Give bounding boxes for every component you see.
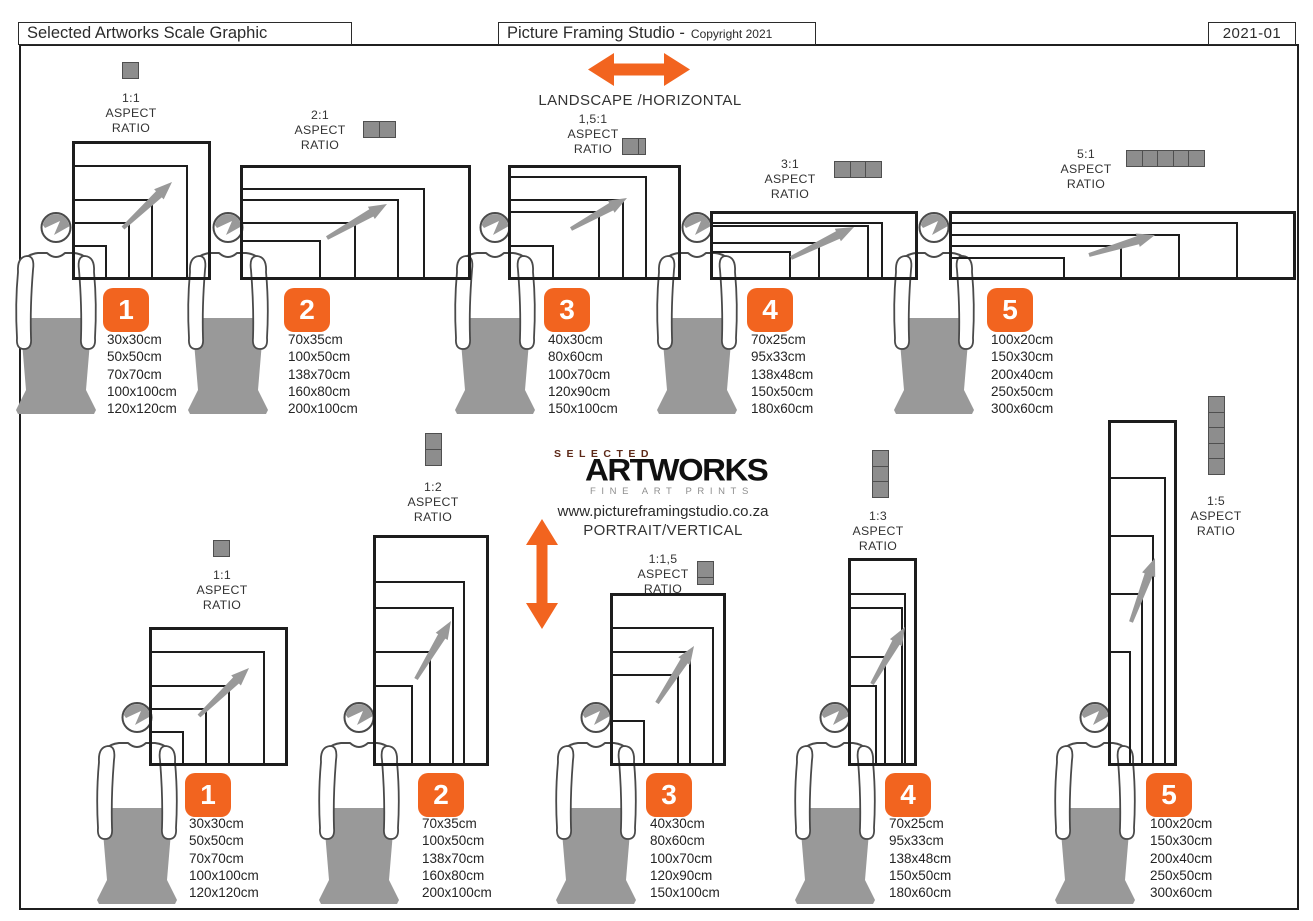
aspect-ratio-icon	[872, 450, 889, 498]
aspect-ratio-icon	[122, 62, 139, 79]
size-item: 120x120cm	[189, 884, 259, 901]
size-item: 200x40cm	[1150, 850, 1212, 867]
studio-title: Picture Framing Studio -	[507, 24, 685, 43]
size-item: 80x60cm	[548, 348, 618, 365]
size-item: 150x100cm	[548, 400, 618, 417]
size-item: 50x50cm	[189, 832, 259, 849]
aspect-word: ASPECT	[71, 106, 191, 121]
scale-up-arrow-icon	[1077, 223, 1167, 267]
aspect-ratio-icon	[425, 433, 442, 466]
group-number-badge: 5	[1146, 773, 1192, 817]
size-list: 100x20cm150x30cm200x40cm250x50cm300x60cm	[991, 331, 1053, 417]
aspect-ratio-icon	[622, 138, 646, 155]
group-number-badge: 4	[747, 288, 793, 332]
aspect-word: ASPECT	[1156, 509, 1276, 524]
scale-up-arrow-icon	[111, 170, 184, 240]
group-number-badge: 1	[185, 773, 231, 817]
ratio-value: 2:1	[260, 108, 380, 123]
size-list: 40x30cm80x60cm100x70cm120x90cm150x100cm	[650, 815, 720, 901]
size-item: 150x50cm	[751, 383, 813, 400]
size-item: 160x80cm	[422, 867, 492, 884]
icon-unit-square	[872, 466, 889, 483]
aspect-word: ASPECT	[162, 583, 282, 598]
icon-unit-square	[638, 138, 647, 155]
scale-up-arrow-icon	[1119, 546, 1167, 634]
aspect-ratio-icon	[213, 540, 230, 557]
icon-unit-square	[1126, 150, 1143, 167]
aspect-ratio-label: 1:1ASPECTRATIO	[71, 91, 191, 137]
icon-unit-square	[1208, 412, 1225, 429]
icon-unit-square	[1188, 150, 1205, 167]
aspect-ratio-label: 1:2ASPECTRATIO	[373, 480, 493, 526]
portrait-orientation-label: PORTRAIT/VERTICAL	[513, 522, 813, 539]
aspect-ratio-icon	[697, 561, 714, 585]
size-item: 138x48cm	[751, 366, 813, 383]
icon-unit-square	[379, 121, 396, 138]
ratio-value: 1:1	[162, 568, 282, 583]
size-item: 138x48cm	[889, 850, 951, 867]
ratio-word: RATIO	[1156, 524, 1276, 539]
icon-unit-square	[425, 433, 442, 450]
size-list: 70x25cm95x33cm138x48cm150x50cm180x60cm	[751, 331, 813, 417]
size-item: 95x33cm	[751, 348, 813, 365]
logo-tagline-text: FINE ART PRINTS	[590, 486, 754, 497]
aspect-word: ASPECT	[260, 123, 380, 138]
icon-unit-square	[1173, 150, 1190, 167]
icon-unit-square	[1208, 443, 1225, 460]
group-number-badge: 3	[646, 773, 692, 817]
aspect-ratio-label: 1:1ASPECTRATIO	[162, 568, 282, 614]
size-item: 160x80cm	[288, 383, 358, 400]
aspect-ratio-icon	[1126, 150, 1205, 167]
size-list: 30x30cm50x50cm70x70cm100x100cm120x120cm	[189, 815, 259, 901]
size-item: 70x70cm	[189, 850, 259, 867]
size-item: 100x70cm	[650, 850, 720, 867]
ratio-value: 1:1	[71, 91, 191, 106]
logo-artworks-text: ARTWORKS	[585, 452, 767, 488]
size-item: 50x50cm	[107, 348, 177, 365]
page-title: Selected Artworks Scale Graphic	[27, 24, 267, 43]
size-item: 40x30cm	[548, 331, 618, 348]
landscape-orientation-label: LANDSCAPE /HORIZONTAL	[490, 92, 790, 109]
size-item: 180x60cm	[751, 400, 813, 417]
size-item: 70x25cm	[889, 815, 951, 832]
icon-unit-square	[865, 161, 882, 178]
size-item: 200x100cm	[422, 884, 492, 901]
title-box-center: Picture Framing Studio - Copyright 2021	[498, 22, 816, 45]
icon-unit-square	[1142, 150, 1159, 167]
icon-unit-square	[1157, 150, 1174, 167]
ratio-word: RATIO	[260, 138, 380, 153]
icon-unit-square	[1208, 396, 1225, 413]
size-item: 80x60cm	[650, 832, 720, 849]
aspect-ratio-label: 1:3ASPECTRATIO	[818, 509, 938, 555]
landscape-double-arrow-icon	[588, 53, 690, 86]
scale-up-arrow-icon	[645, 634, 706, 715]
icon-unit-square	[872, 481, 889, 498]
size-item: 70x35cm	[422, 815, 492, 832]
aspect-ratio-icon	[363, 121, 396, 138]
size-item: 200x100cm	[288, 400, 358, 417]
ratio-word: RATIO	[1026, 177, 1146, 192]
group-number-badge: 3	[544, 288, 590, 332]
size-list: 100x20cm150x30cm200x40cm250x50cm300x60cm	[1150, 815, 1212, 901]
size-list: 30x30cm50x50cm70x70cm100x100cm120x120cm	[107, 331, 177, 417]
icon-unit-square	[697, 561, 714, 578]
size-item: 250x50cm	[991, 383, 1053, 400]
ratio-word: RATIO	[162, 598, 282, 613]
icon-unit-square	[1208, 458, 1225, 475]
aspect-ratio-label: 2:1ASPECTRATIO	[260, 108, 380, 154]
scale-up-arrow-icon	[779, 215, 866, 270]
size-item: 40x30cm	[650, 815, 720, 832]
size-item: 100x70cm	[548, 366, 618, 383]
doc-number: 2021-01	[1223, 25, 1282, 42]
icon-unit-square	[697, 577, 714, 586]
aspect-ratio-icon	[1208, 396, 1225, 475]
size-item: 30x30cm	[189, 815, 259, 832]
size-item: 100x20cm	[1150, 815, 1212, 832]
aspect-word: ASPECT	[373, 495, 493, 510]
aspect-word: ASPECT	[818, 524, 938, 539]
aspect-ratio-label: 1:5ASPECTRATIO	[1156, 494, 1276, 540]
size-item: 250x50cm	[1150, 867, 1212, 884]
size-item: 100x100cm	[107, 383, 177, 400]
size-item: 70x35cm	[288, 331, 358, 348]
size-item: 70x25cm	[751, 331, 813, 348]
size-list: 40x30cm80x60cm100x70cm120x90cm150x100cm	[548, 331, 618, 417]
icon-unit-square	[1208, 427, 1225, 444]
size-item: 120x90cm	[548, 383, 618, 400]
icon-unit-square	[425, 449, 442, 466]
size-item: 95x33cm	[889, 832, 951, 849]
size-item: 120x90cm	[650, 867, 720, 884]
icon-unit-square	[872, 450, 889, 467]
ratio-value: 1:2	[373, 480, 493, 495]
size-list: 70x35cm100x50cm138x70cm160x80cm200x100cm	[422, 815, 492, 901]
ratio-value: 1,5:1	[533, 112, 653, 127]
aspect-word: ASPECT	[730, 172, 850, 187]
scale-up-arrow-icon	[187, 656, 261, 728]
ratio-value: 1:3	[818, 509, 938, 524]
title-box-left: Selected Artworks Scale Graphic	[18, 22, 352, 45]
ratio-value: 3:1	[730, 157, 850, 172]
size-item: 180x60cm	[889, 884, 951, 901]
group-number-badge: 4	[885, 773, 931, 817]
size-list: 70x35cm100x50cm138x70cm160x80cm200x100cm	[288, 331, 358, 417]
size-item: 120x120cm	[107, 400, 177, 417]
aspect-ratio-icon	[834, 161, 882, 178]
scale-up-arrow-icon	[315, 192, 399, 250]
doc-number-box: 2021-01	[1208, 22, 1296, 45]
size-item: 100x20cm	[991, 331, 1053, 348]
size-item: 100x100cm	[189, 867, 259, 884]
size-item: 150x100cm	[650, 884, 720, 901]
icon-unit-square	[122, 62, 139, 79]
size-item: 30x30cm	[107, 331, 177, 348]
size-item: 300x60cm	[991, 400, 1053, 417]
size-item: 100x50cm	[288, 348, 358, 365]
copyright-text: Copyright 2021	[691, 27, 772, 41]
size-item: 150x50cm	[889, 867, 951, 884]
group-number-badge: 2	[284, 288, 330, 332]
icon-unit-square	[363, 121, 380, 138]
size-item: 150x30cm	[1150, 832, 1212, 849]
ratio-word: RATIO	[373, 510, 493, 525]
aspect-ratio-label: 3:1ASPECTRATIO	[730, 157, 850, 203]
scale-up-arrow-icon	[559, 186, 639, 241]
size-item: 150x30cm	[991, 348, 1053, 365]
icon-unit-square	[850, 161, 867, 178]
size-item: 138x70cm	[288, 366, 358, 383]
group-number-badge: 1	[103, 288, 149, 332]
ratio-word: RATIO	[71, 121, 191, 136]
website-url-text: www.pictureframingstudio.co.za	[513, 503, 813, 520]
ratio-value: 1:5	[1156, 494, 1276, 509]
size-item: 200x40cm	[991, 366, 1053, 383]
size-item: 100x50cm	[422, 832, 492, 849]
size-item: 138x70cm	[422, 850, 492, 867]
ratio-word: RATIO	[818, 539, 938, 554]
icon-unit-square	[213, 540, 230, 557]
group-number-badge: 2	[418, 773, 464, 817]
size-item: 300x60cm	[1150, 884, 1212, 901]
icon-unit-square	[834, 161, 851, 178]
group-number-badge: 5	[987, 288, 1033, 332]
scale-up-arrow-icon	[860, 615, 917, 696]
ratio-word: RATIO	[730, 187, 850, 202]
scale-graphic-canvas: Selected Artworks Scale Graphic Picture …	[0, 0, 1313, 921]
scale-up-arrow-icon	[404, 609, 463, 691]
size-item: 70x70cm	[107, 366, 177, 383]
size-list: 70x25cm95x33cm138x48cm150x50cm180x60cm	[889, 815, 951, 901]
icon-unit-square	[622, 138, 639, 155]
